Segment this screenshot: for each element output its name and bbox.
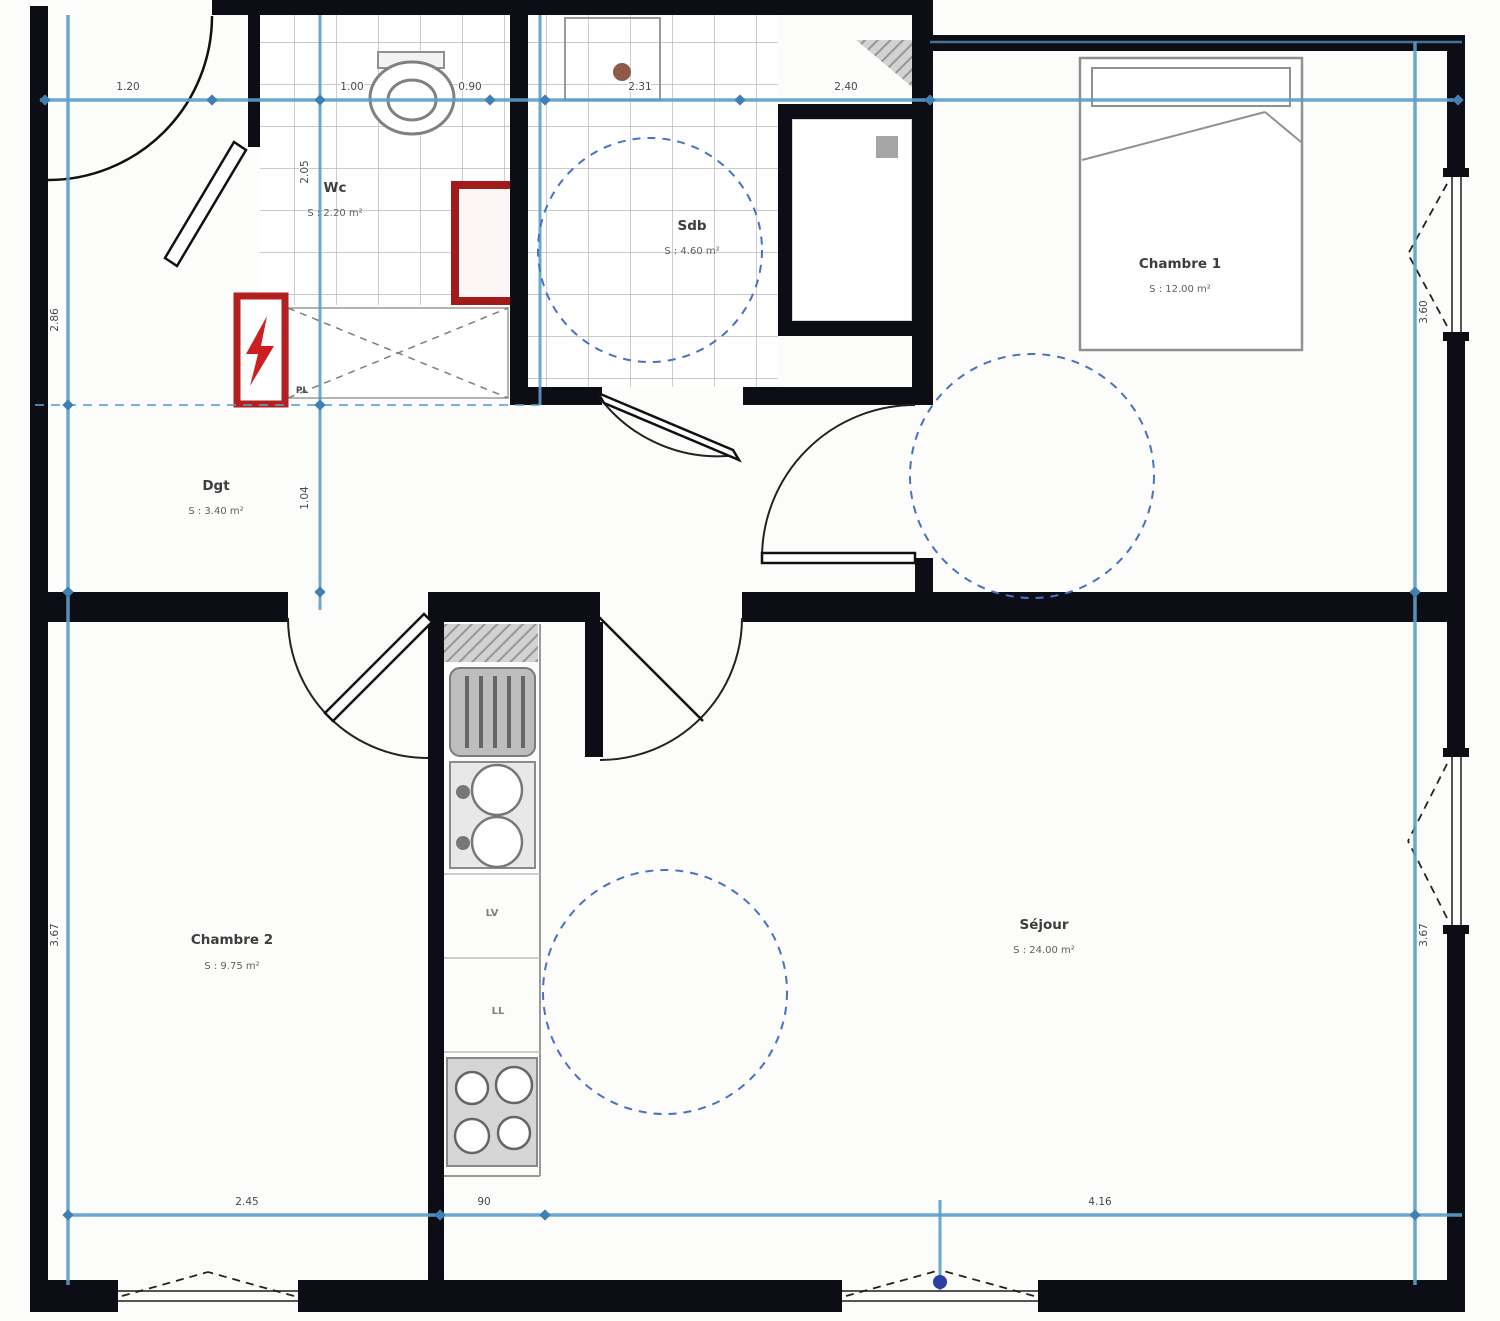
room-label-chambre1: Chambre 1 <box>1139 256 1221 272</box>
room-area-chambre1: S : 12.00 m² <box>1149 284 1211 295</box>
room-area-chambre2: S : 9.75 m² <box>204 961 259 972</box>
dim-top-4: 2.31 <box>628 81 651 93</box>
sink-basin-1 <box>472 765 522 815</box>
dishwasher-label: LV <box>486 908 499 919</box>
sejour-stub-wall <box>585 622 603 757</box>
bottom-wall-a <box>30 1280 118 1312</box>
floor-plan: 1.20 1.00 0.90 2.31 2.40 2.86 3.67 2.05 … <box>0 0 1500 1321</box>
top-wall <box>212 0 930 15</box>
wc-bathroom-wall <box>510 15 528 405</box>
room-label-chambre2: Chambre 2 <box>191 932 273 948</box>
sink-faucet-1 <box>456 785 470 799</box>
washing-machine-label: LL <box>492 1006 505 1017</box>
burner <box>456 1072 488 1104</box>
closet-label: PL <box>296 386 309 396</box>
right-wall-c <box>1447 927 1465 1312</box>
toilet-icon <box>370 52 454 134</box>
main-wall-mid <box>428 592 600 622</box>
shower-drain <box>876 136 898 158</box>
window-cap <box>1443 748 1469 757</box>
dim-top-1: 1.20 <box>116 81 139 93</box>
kitchen-wall <box>428 622 444 1312</box>
dim-right-2: 3.67 <box>1418 923 1430 946</box>
bed-icon <box>1080 58 1302 350</box>
technical-duct <box>455 185 519 301</box>
room-area-dgt: S : 3.40 m² <box>188 506 243 517</box>
main-wall-right <box>742 592 1465 622</box>
main-wall-left <box>48 592 288 622</box>
dim-bottom-3: 4.16 <box>1088 1196 1112 1208</box>
chambre1-door-leaf <box>762 553 915 563</box>
sink-basin-2 <box>472 817 522 867</box>
window-center-marker <box>933 1275 947 1289</box>
room-label-dgt: Dgt <box>202 478 230 494</box>
dim-left-2: 3.67 <box>49 923 61 946</box>
window-cap <box>1443 332 1469 341</box>
shower-bottom-wall <box>778 321 933 336</box>
shower-top-wall <box>778 104 933 119</box>
burner <box>455 1119 489 1153</box>
window-cap <box>1443 925 1469 934</box>
room-area-sdb: S : 4.60 m² <box>664 246 719 257</box>
dim-bottom-1: 2.45 <box>235 1196 258 1208</box>
bathroom-right-wall <box>912 0 933 405</box>
burner <box>496 1067 532 1103</box>
room-area-sejour: S : 24.00 m² <box>1013 945 1075 956</box>
dim-top-3: 0.90 <box>458 81 481 93</box>
dim-top-5: 2.40 <box>834 81 857 93</box>
sink-icon <box>450 762 535 868</box>
dim-top-2: 1.00 <box>340 81 363 93</box>
washbasin-drain <box>613 63 631 81</box>
dim-right-1: 3.60 <box>1418 300 1430 323</box>
fridge-icon <box>450 668 535 756</box>
kitchen-soffit-hatch <box>444 624 538 662</box>
room-area-wc: S : 2.20 m² <box>307 208 362 219</box>
burner <box>498 1117 530 1149</box>
dim-inner-1: 2.05 <box>299 160 311 183</box>
room-label-wc: Wc <box>324 180 347 196</box>
bathroom-bottom-left <box>510 387 602 405</box>
right-wall-a <box>1447 35 1465 177</box>
dim-bottom-2: 90 <box>477 1196 490 1208</box>
shower <box>792 119 912 321</box>
right-wall-b <box>1447 332 1465 755</box>
electrical-panel-icon <box>237 296 285 404</box>
wc-left-stub <box>248 15 260 147</box>
bottom-wall-c <box>1038 1280 1465 1312</box>
room-label-sejour: Séjour <box>1019 917 1068 933</box>
dim-left-1: 2.86 <box>49 308 61 332</box>
bottom-wall-b <box>298 1280 842 1312</box>
shower-left-wall <box>778 104 792 336</box>
bathroom-bottom-right <box>743 387 933 405</box>
sink-faucet-2 <box>456 836 470 850</box>
left-wall <box>30 6 48 1312</box>
room-label-sdb: Sdb <box>677 218 706 234</box>
window-cap <box>1443 168 1469 177</box>
cooktop-icon <box>447 1058 537 1166</box>
dim-inner-2: 1.04 <box>299 486 311 510</box>
